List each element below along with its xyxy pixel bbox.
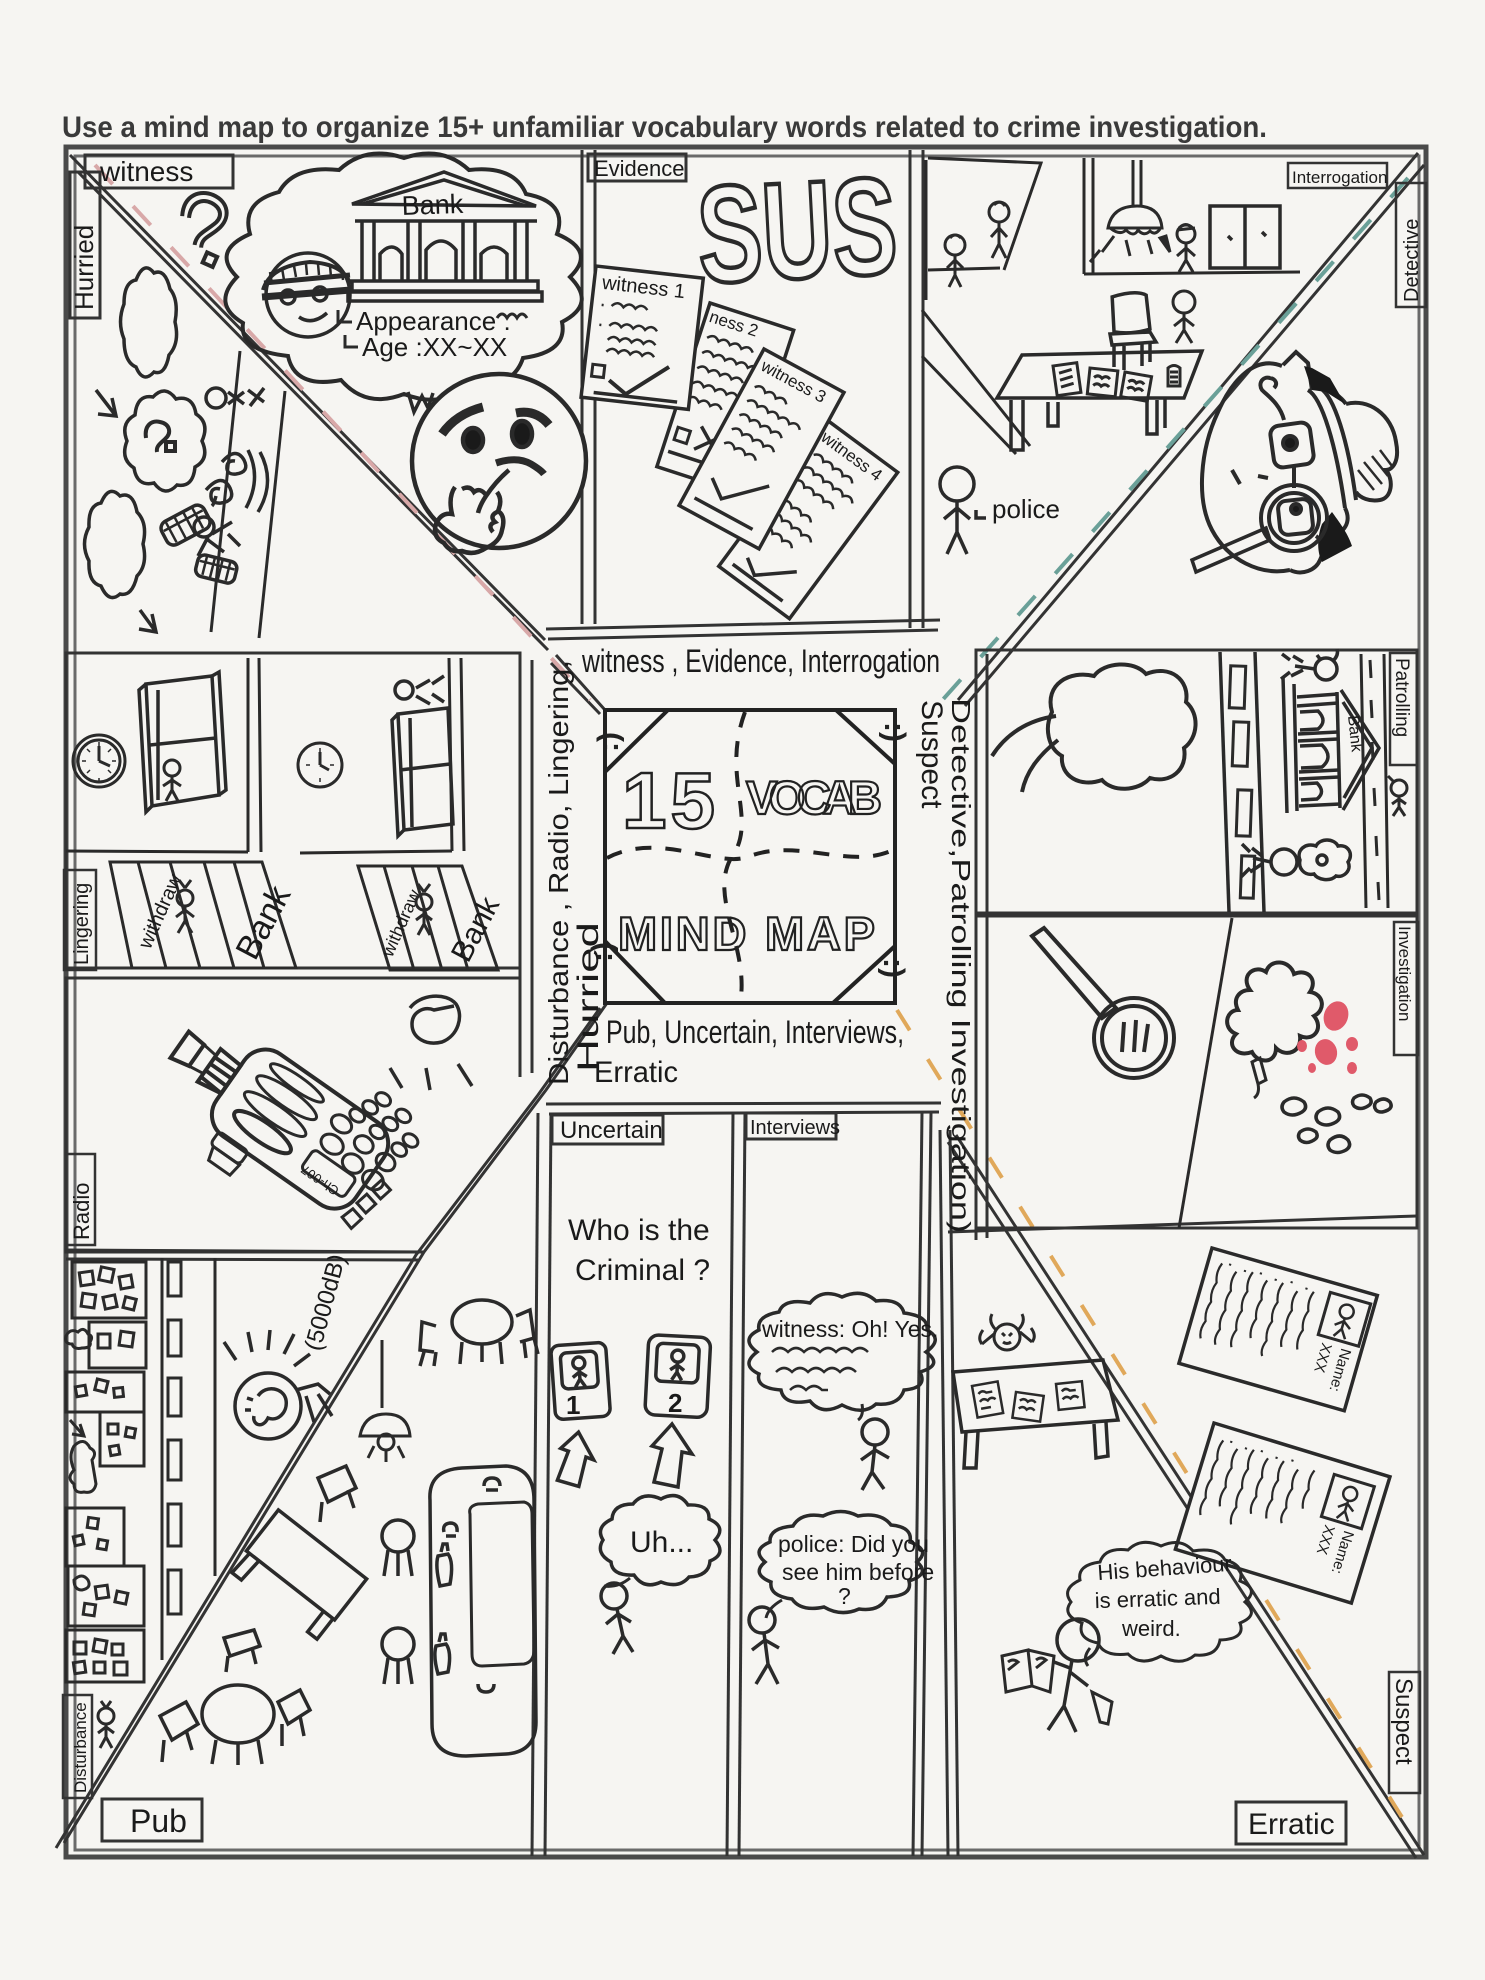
svg-text:see him before: see him before (782, 1559, 934, 1585)
svg-text:weird.: weird. (1121, 1616, 1181, 1641)
svg-text:Age :XX~XX: Age :XX~XX (362, 332, 507, 362)
svg-text:Investigation: Investigation (1395, 926, 1414, 1021)
svg-text:Detective: Detective (1401, 219, 1423, 302)
svg-text:Hurried: Hurried (69, 225, 99, 310)
svg-text:Use a mind map to organize 15+: Use a mind map to organize 15+ unfamilia… (62, 111, 1267, 144)
svg-text::): :) (592, 732, 625, 752)
svg-text:police: Did you: police: Did you (778, 1531, 929, 1557)
svg-text:15: 15 (622, 756, 719, 845)
svg-text:VOCAB: VOCAB (746, 771, 882, 824)
svg-text:2: 2 (668, 1388, 682, 1418)
svg-text:?: ? (838, 1583, 851, 1609)
svg-text:Pub: Pub (130, 1803, 187, 1839)
svg-text:Radio: Radio (69, 1183, 94, 1240)
svg-text:Detective,Patrolling Investiga: Detective,Patrolling Investigation) (946, 698, 976, 1233)
svg-text:Pub, Uncertain, Interviews,: Pub, Uncertain, Interviews, (606, 1014, 904, 1050)
svg-text:witness , Evidence, Interrogat: witness , Evidence, Interrogation (581, 643, 940, 679)
svg-text:(5000dB): (5000dB) (300, 1251, 352, 1353)
svg-text::): :) (878, 722, 911, 742)
svg-text:Disturbance , Radio, Lingering: Disturbance , Radio, Lingering, (543, 660, 574, 1085)
svg-text:Who is the: Who is the (568, 1214, 710, 1247)
svg-text:Uncertain: Uncertain (560, 1117, 663, 1144)
svg-text:Uh...: Uh... (630, 1526, 693, 1559)
svg-text:Hurried: Hurried (572, 922, 605, 1072)
svg-text:MIND MAP: MIND MAP (618, 907, 875, 960)
svg-text:witness: witness (99, 156, 193, 187)
svg-text:is erratic and: is erratic and (1094, 1584, 1221, 1613)
svg-text:Bank: Bank (229, 879, 299, 966)
svg-text:Suspect: Suspect (915, 700, 948, 809)
svg-text:1: 1 (566, 1390, 580, 1420)
svg-text:witness: Oh! Yes.: witness: Oh! Yes. (761, 1316, 938, 1342)
svg-text::): :) (877, 958, 910, 978)
svg-text:Interviews: Interviews (750, 1117, 840, 1139)
svg-text:Disturbance: Disturbance (71, 1702, 90, 1793)
svg-text:Bank: Bank (445, 891, 507, 968)
svg-text:SUS: SUS (694, 149, 901, 313)
svg-text:Interrogation: Interrogation (1292, 168, 1387, 187)
svg-text:Lingering: Lingering (71, 883, 93, 965)
svg-text:His behaviour: His behaviour (1097, 1551, 1233, 1585)
svg-text:Suspect: Suspect (1390, 1678, 1417, 1765)
svg-text:Patrolling: Patrolling (1391, 658, 1412, 737)
svg-text:Criminal ?: Criminal ? (575, 1254, 710, 1287)
svg-text:Erratic: Erratic (1248, 1808, 1335, 1841)
svg-text:police: police (992, 494, 1060, 524)
svg-text:Erratic: Erratic (594, 1056, 678, 1089)
svg-text:Bank: Bank (401, 189, 464, 221)
svg-text:Evidence: Evidence (594, 156, 685, 181)
